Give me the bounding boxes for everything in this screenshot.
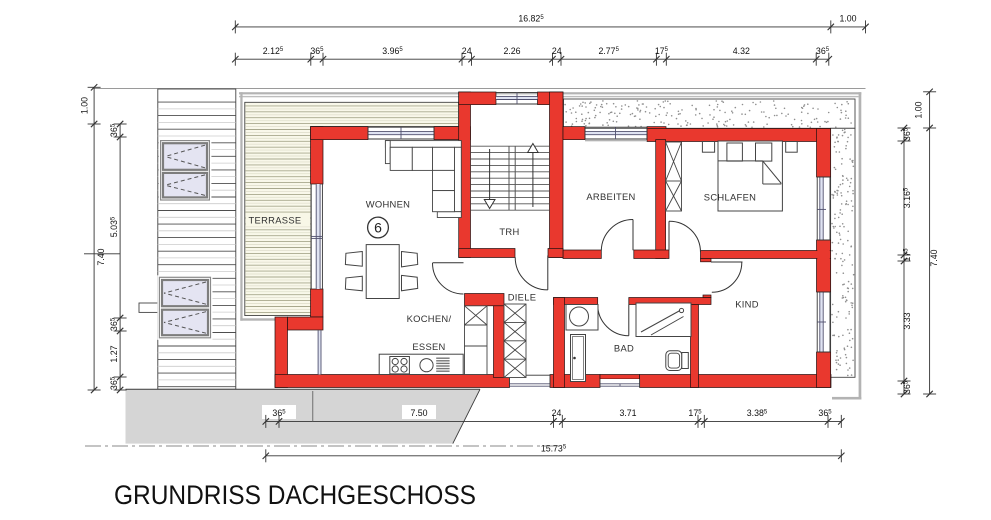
- svg-text:24: 24: [552, 408, 562, 418]
- svg-text:7.40: 7.40: [929, 249, 939, 266]
- svg-text:24: 24: [462, 46, 472, 56]
- svg-text:7.40: 7.40: [96, 248, 106, 265]
- svg-text:KIND: KIND: [735, 299, 759, 310]
- svg-text:DIELE: DIELE: [508, 292, 537, 303]
- svg-text:2.26: 2.26: [503, 46, 520, 56]
- svg-text:6: 6: [374, 220, 382, 236]
- svg-text:ARBEITEN: ARBEITEN: [586, 191, 635, 202]
- svg-text:ESSEN: ESSEN: [412, 341, 445, 352]
- svg-text:3.71: 3.71: [619, 408, 636, 418]
- svg-text:TERRASSE: TERRASSE: [249, 215, 302, 226]
- svg-text:KOCHEN/: KOCHEN/: [407, 313, 452, 324]
- svg-text:1.00: 1.00: [80, 97, 90, 114]
- svg-text:7.50: 7.50: [410, 408, 427, 418]
- svg-text:1.00: 1.00: [914, 101, 924, 118]
- svg-text:WOHNEN: WOHNEN: [366, 199, 411, 210]
- svg-text:1.00: 1.00: [839, 14, 856, 24]
- svg-text:3.33: 3.33: [902, 312, 912, 329]
- svg-text:SCHLAFEN: SCHLAFEN: [704, 192, 756, 203]
- svg-text:TRH: TRH: [499, 226, 519, 237]
- svg-text:4.32: 4.32: [733, 46, 750, 56]
- svg-text:BAD: BAD: [614, 343, 634, 354]
- svg-text:24: 24: [552, 46, 562, 56]
- svg-text:1.27: 1.27: [109, 345, 119, 362]
- svg-text:GRUNDRISS DACHGESCHOSS: GRUNDRISS DACHGESCHOSS: [114, 480, 476, 510]
